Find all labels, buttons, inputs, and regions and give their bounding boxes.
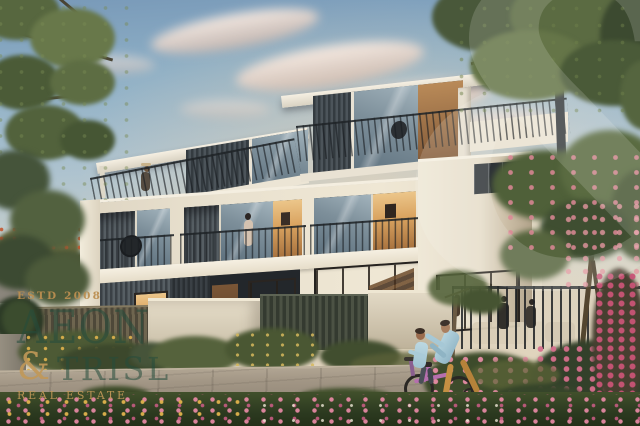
child-hair [415, 328, 425, 334]
tree-foliage [25, 255, 90, 305]
flowerbed-white-blooms [250, 398, 510, 422]
hedge-yellow-flowers [230, 330, 315, 366]
scene: & ESTD 2008 AEON & TRISL REAL ESTATE [0, 0, 640, 426]
street-tree-foliage [460, 288, 504, 314]
flowerbed-yellow-blooms [0, 396, 250, 424]
tree-leaf-scatter [450, 0, 640, 120]
wall-art [281, 212, 290, 226]
wall-art [385, 204, 396, 219]
bougainvillea-blooms [594, 272, 640, 406]
